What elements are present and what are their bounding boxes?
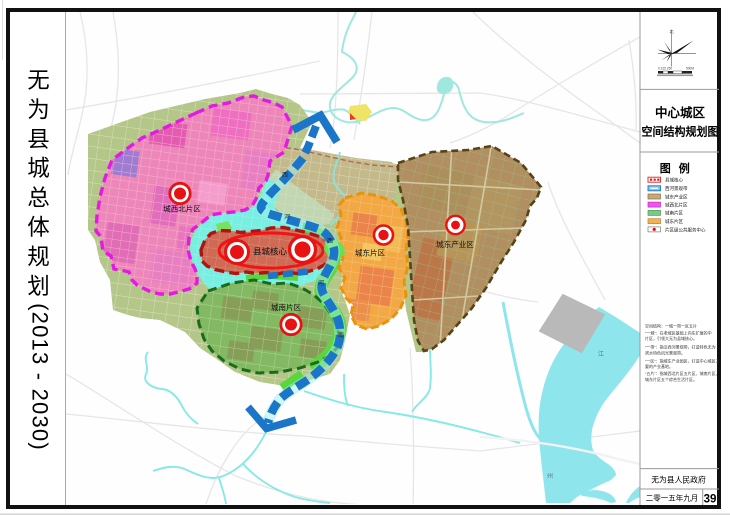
svg-text:0 125 250: 0 125 250 <box>658 67 672 71</box>
svg-text:“一城”：在老城区基础上向东扩展的中: “一城”：在老城区基础上向东扩展的中 <box>645 329 712 335</box>
svg-text:城南片区: 城南片区 <box>665 210 683 217</box>
svg-text:无为县人民政府: 无为县人民政府 <box>651 475 706 485</box>
svg-text:城东片区: 城东片区 <box>665 218 683 225</box>
svg-text:要的产业基地。: 要的产业基地。 <box>645 363 673 369</box>
svg-text:州: 州 <box>547 473 553 480</box>
svg-text:体: 体 <box>27 215 50 240</box>
svg-text:二零一五年九月: 二零一五年九月 <box>646 493 699 503</box>
svg-text:城东产业区: 城东产业区 <box>665 193 688 200</box>
svg-text:城西北片区: 城西北片区 <box>163 204 201 214</box>
svg-text:(2013 - 2030): (2013 - 2030) <box>28 303 53 451</box>
svg-text:空间结构：一城一带一区五片: 空间结构：一城一带一区五片 <box>645 323 697 329</box>
svg-text:片区，引领大无为县域核心。: 片区，引领大无为县域核心。 <box>645 335 697 341</box>
svg-text:图 例: 图 例 <box>660 161 693 175</box>
svg-text:规: 规 <box>27 244 50 269</box>
svg-text:南: 南 <box>338 331 344 339</box>
svg-text:北: 北 <box>670 28 674 34</box>
svg-text:滨水特色风光景观带。: 滨水特色风光景观带。 <box>645 349 685 355</box>
svg-text:河: 河 <box>318 279 324 287</box>
svg-text:河: 河 <box>284 213 290 221</box>
svg-text:500M: 500M <box>686 67 694 71</box>
svg-text:城西北片区: 城西北片区 <box>665 201 688 208</box>
svg-text:片区级公共服务中心: 片区级公共服务中心 <box>665 226 706 233</box>
svg-text:为: 为 <box>27 97 50 122</box>
svg-text:空间结构规划图: 空间结构规划图 <box>642 125 719 139</box>
svg-text:城东产业区: 城东产业区 <box>436 239 474 249</box>
svg-text:西河景观带: 西河景观带 <box>665 185 688 192</box>
svg-text:西: 西 <box>282 172 288 179</box>
svg-text:“五片”：指城西北片区五片区、城南片区、: “五片”：指城西北片区五片区、城南片区、 <box>645 370 720 376</box>
svg-text:江: 江 <box>598 351 604 358</box>
svg-text:城: 城 <box>27 156 50 181</box>
svg-text:西: 西 <box>327 238 333 245</box>
svg-text:无: 无 <box>27 68 50 93</box>
svg-text:县: 县 <box>27 127 50 152</box>
svg-text:中心城区: 中心城区 <box>655 105 706 120</box>
svg-text:总: 总 <box>27 186 50 211</box>
svg-text:“一带”：指沿西河景观带，打造特色无为: “一带”：指沿西河景观带，打造特色无为 <box>645 344 716 350</box>
svg-text:“一区”：指城东产业园区，打造中心城区主: “一区”：指城东产业园区，打造中心城区主 <box>645 357 720 363</box>
svg-text:城东片区: 城东片区 <box>355 248 385 258</box>
svg-text:城东片区五个综合生活片区。: 城东片区五个综合生活片区。 <box>645 376 697 382</box>
svg-text:39: 39 <box>704 494 717 506</box>
svg-text:县城核心: 县城核心 <box>665 177 683 184</box>
svg-text:划: 划 <box>27 274 50 299</box>
svg-text:城南片区: 城南片区 <box>271 302 301 312</box>
svg-text:县城核心: 县城核心 <box>253 247 288 257</box>
